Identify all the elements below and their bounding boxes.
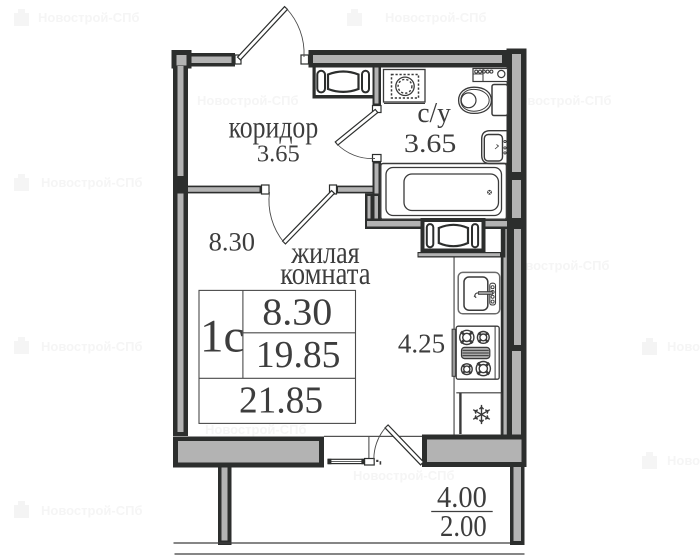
svg-text:3.65: 3.65 <box>404 128 456 158</box>
svg-text:1с: 1с <box>200 310 244 362</box>
svg-text:с/у: с/у <box>417 98 451 129</box>
svg-text:19.85: 19.85 <box>256 334 341 376</box>
svg-text:коридор: коридор <box>229 110 319 145</box>
svg-text:3.65: 3.65 <box>257 141 300 168</box>
svg-text:Новострой-СПб: Новострой-СПб <box>197 93 298 108</box>
svg-text:Новострой-СПб: Новострой-СПб <box>41 339 142 354</box>
svg-text:Новостр: Новостр <box>667 453 700 468</box>
svg-text:21.85: 21.85 <box>239 379 323 421</box>
svg-text:8.30: 8.30 <box>262 291 332 333</box>
svg-text:Новострой-СПб: Новострой-СПб <box>41 175 142 190</box>
svg-text:4.25: 4.25 <box>398 329 445 359</box>
svg-text:8.30: 8.30 <box>209 227 255 257</box>
svg-text:Новострой-СПб: Новострой-СПб <box>41 503 142 518</box>
svg-text:2.00: 2.00 <box>440 509 487 543</box>
svg-text:Новострой-СПб: Новострой-СПб <box>205 422 306 437</box>
svg-text:Новострой-СПб: Новострой-СПб <box>38 10 139 25</box>
svg-text:комната: комната <box>280 256 370 291</box>
svg-text:Новострой-СПб: Новострой-СПб <box>385 10 486 25</box>
svg-text:Новостр: Новостр <box>667 339 700 354</box>
